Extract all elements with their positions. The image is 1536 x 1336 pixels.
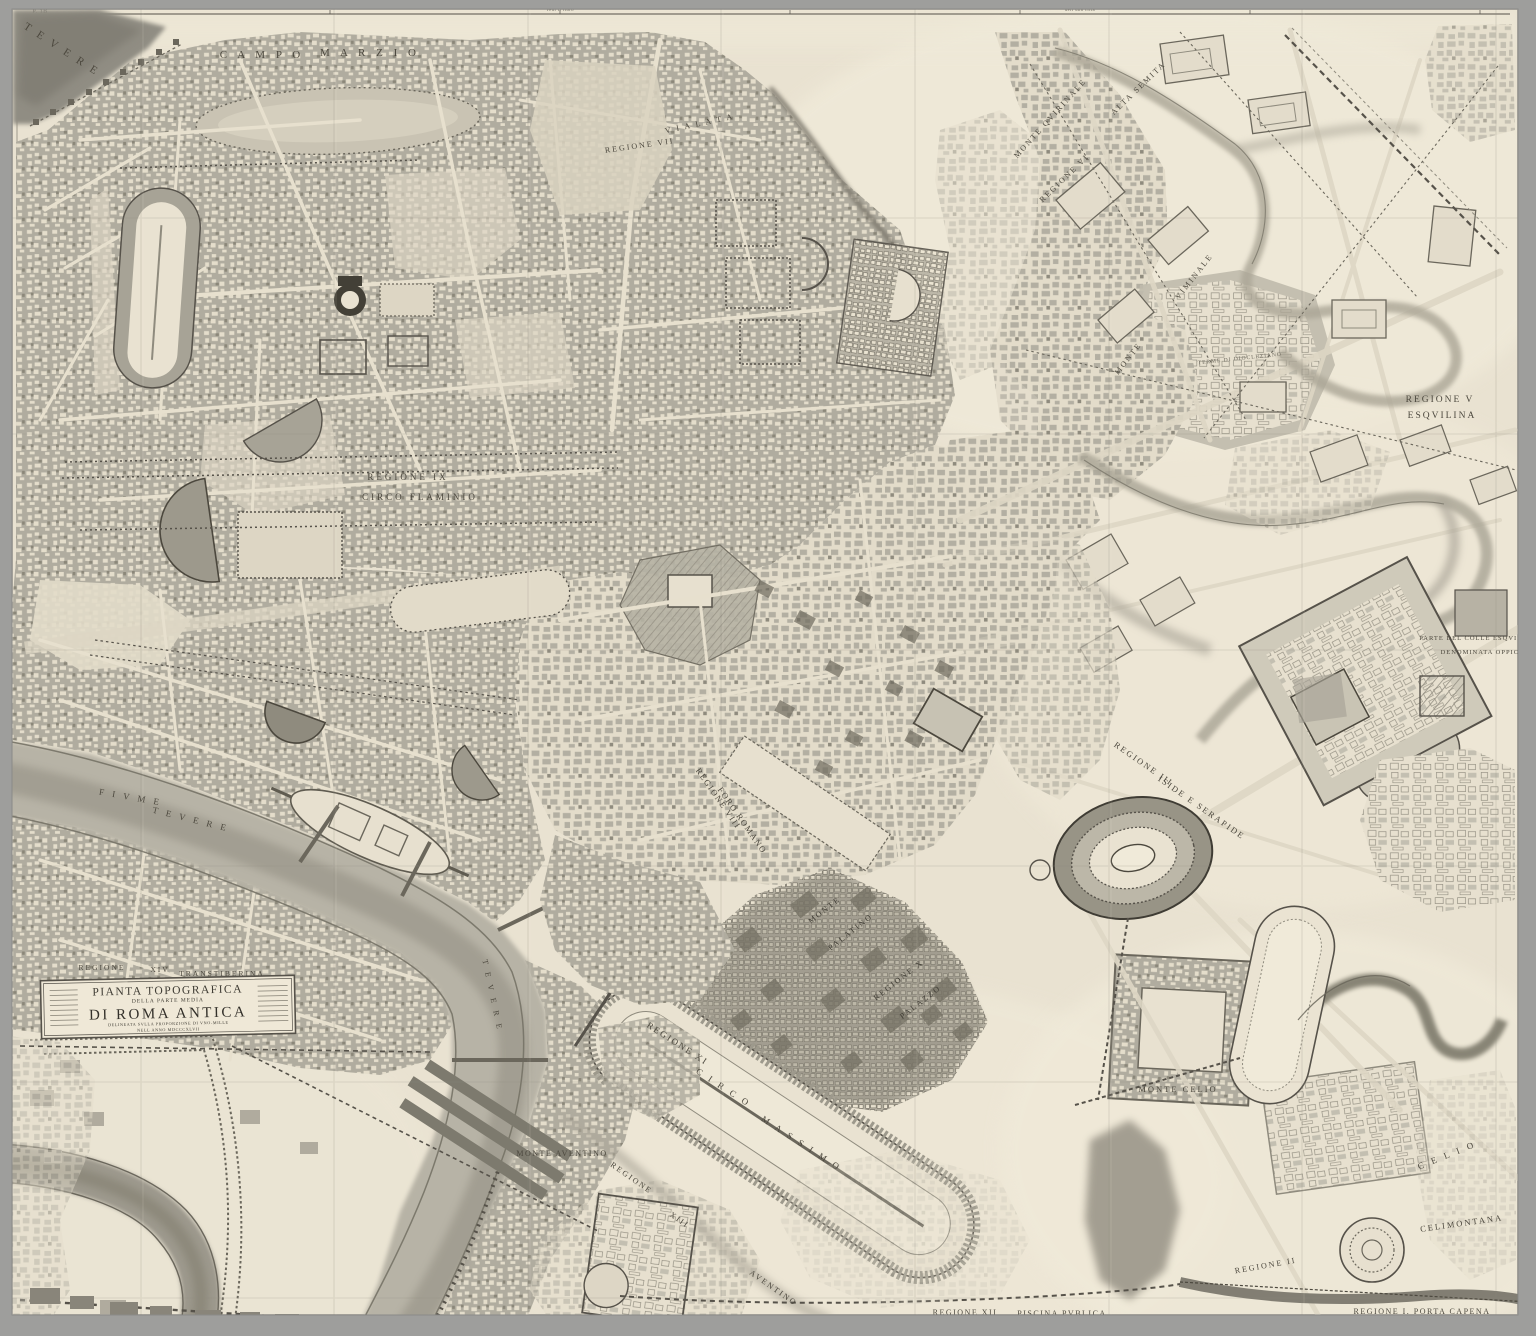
svg-text:REGIONE IX: REGIONE IX — [367, 472, 448, 482]
svg-text:MONTE AVENTINO: MONTE AVENTINO — [516, 1149, 607, 1158]
svg-text:XIV: XIV — [150, 965, 169, 974]
svg-text:REGIONE: REGIONE — [79, 963, 126, 972]
svg-text:C A M P O: C A M P O — [220, 49, 305, 61]
svg-text:ESQVILINA: ESQVILINA — [1408, 411, 1477, 421]
svg-text:DENOMINATA OPPIO: DENOMINATA OPPIO — [1441, 649, 1520, 656]
svg-text:REGIONE V: REGIONE V — [1406, 395, 1475, 405]
svg-text:MONTE CELIO: MONTE CELIO — [1138, 1084, 1217, 1094]
svg-text:M A R Z I O: M A R Z I O — [320, 47, 420, 59]
svg-text:CIRCO FLAMINIO: CIRCO FLAMINIO — [362, 492, 478, 502]
